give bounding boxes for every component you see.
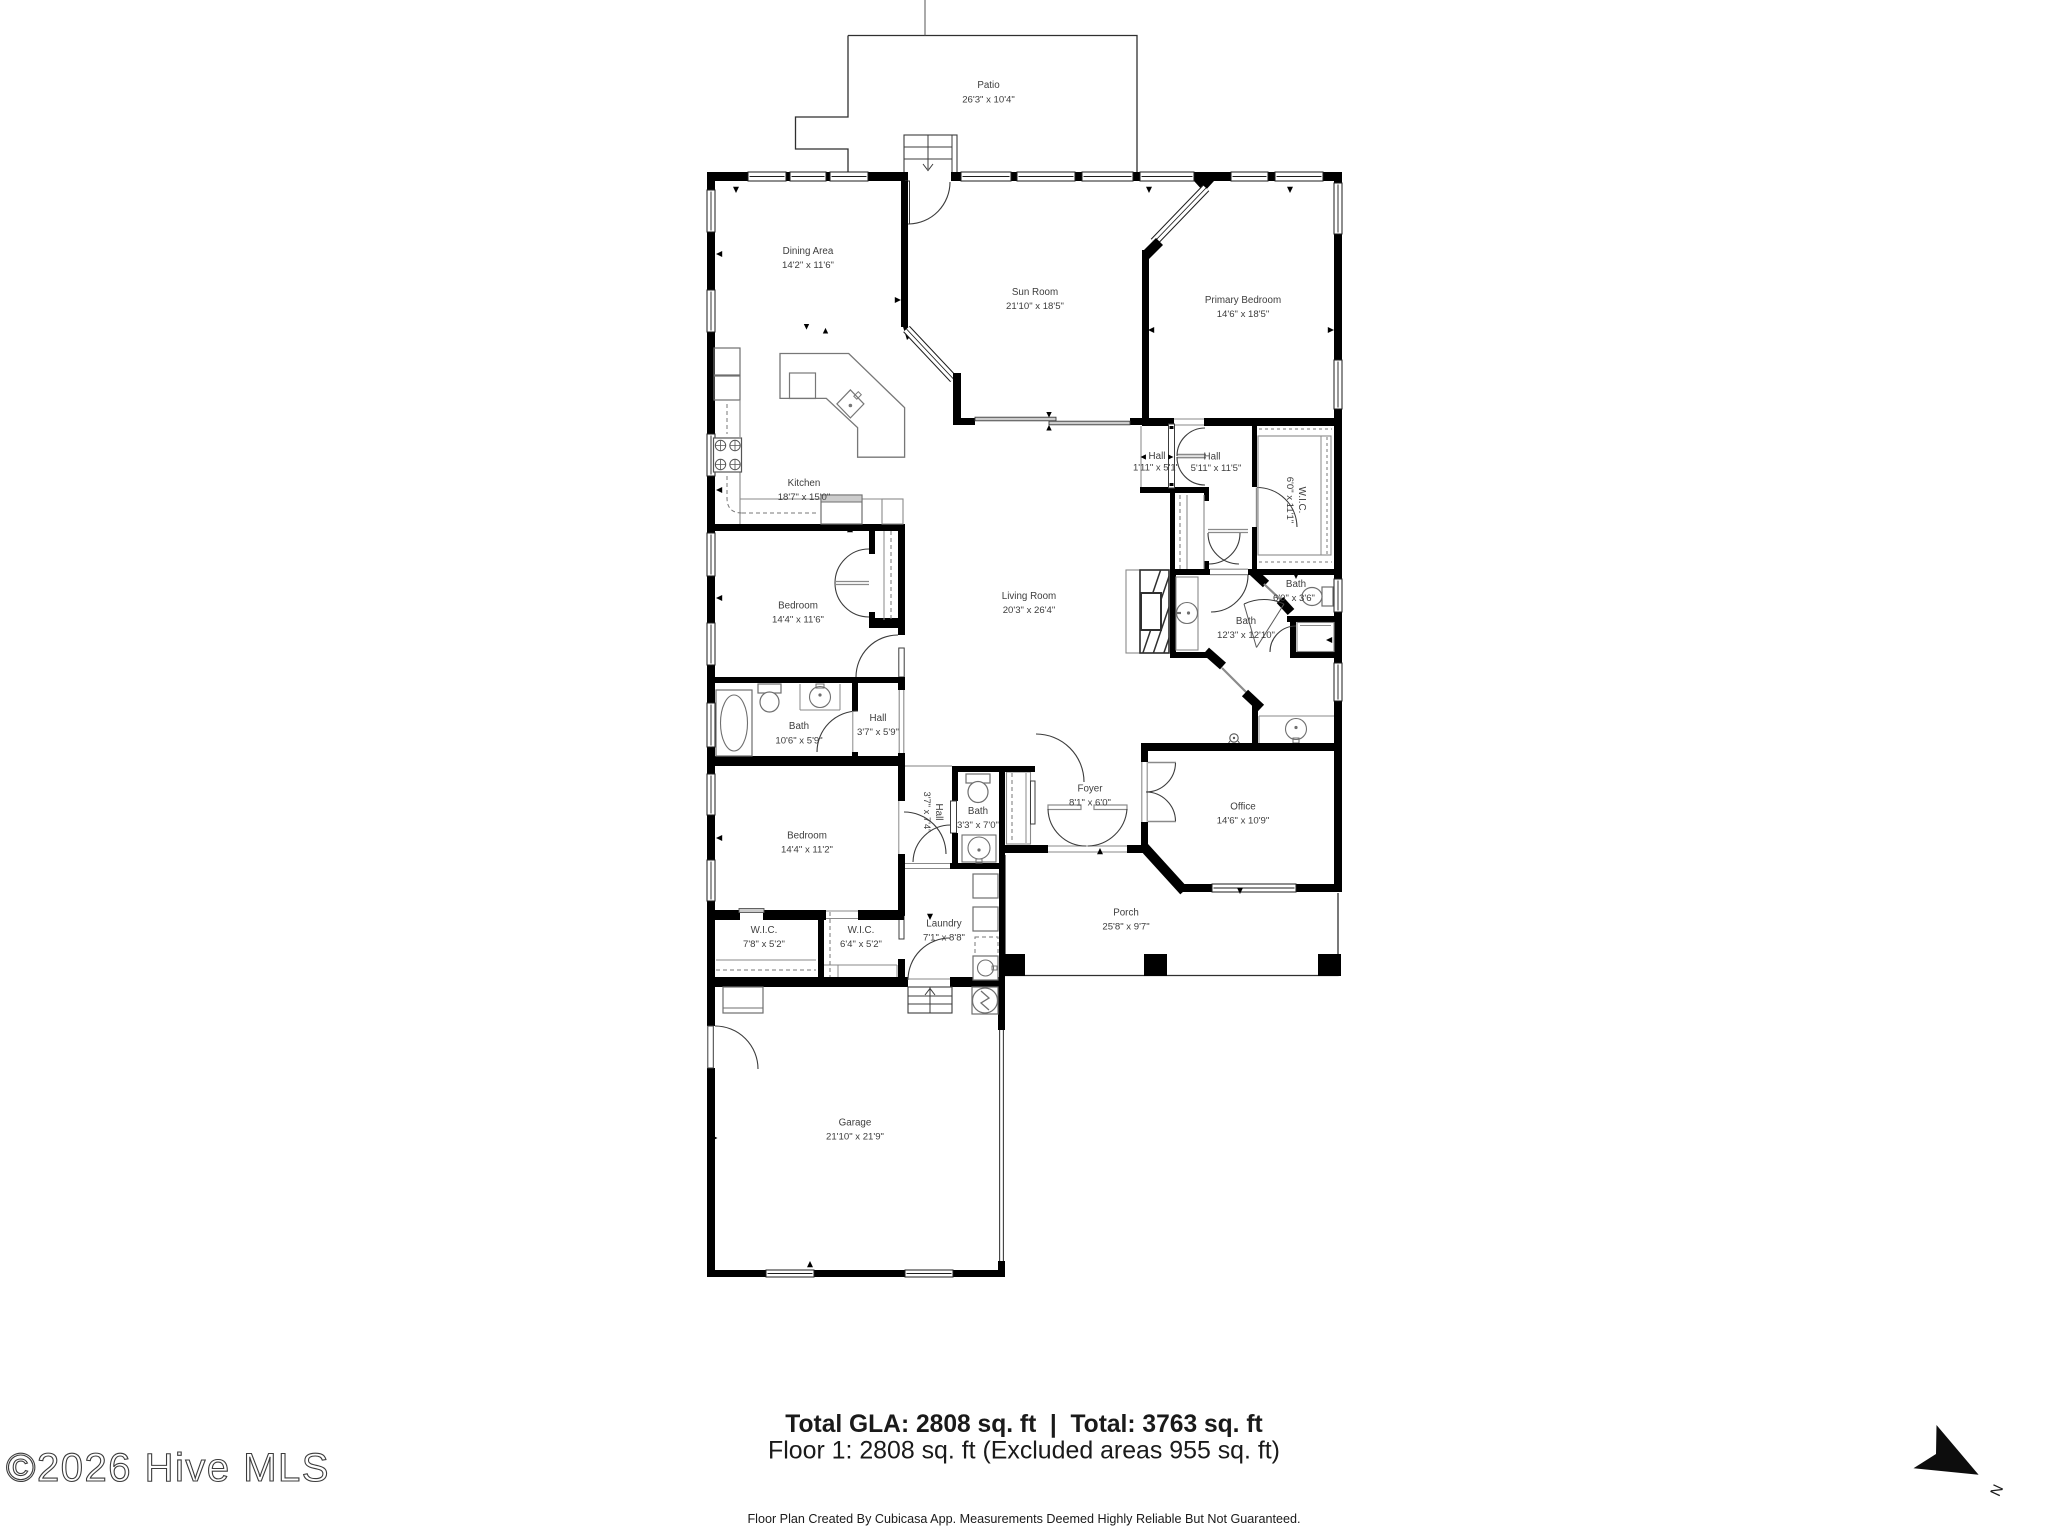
svg-text:Bath: Bath — [1286, 579, 1306, 590]
svg-text:21'10" x 21'9": 21'10" x 21'9" — [826, 1132, 884, 1143]
svg-text:Floor Plan Created By Cubicasa: Floor Plan Created By Cubicasa App. Meas… — [747, 1512, 1300, 1526]
svg-text:14'6" x 10'9": 14'6" x 10'9" — [1217, 816, 1270, 827]
svg-text:20'3" x 26'4": 20'3" x 26'4" — [1003, 605, 1056, 616]
svg-text:8'1" x 6'0": 8'1" x 6'0" — [1069, 798, 1111, 809]
svg-text:6'0" x 11'1": 6'0" x 11'1" — [1284, 477, 1295, 524]
svg-text:Sun Room: Sun Room — [1012, 287, 1058, 298]
svg-text:21'10" x 18'5": 21'10" x 18'5" — [1006, 301, 1064, 312]
svg-text:Living Room: Living Room — [1002, 591, 1056, 602]
svg-text:Foyer: Foyer — [1077, 784, 1103, 795]
svg-text:14'4" x 11'6": 14'4" x 11'6" — [772, 615, 824, 626]
svg-text:Kitchen: Kitchen — [788, 478, 821, 489]
svg-text:25'8" x 9'7": 25'8" x 9'7" — [1102, 922, 1149, 933]
svg-text:3'7" x 7'4": 3'7" x 7'4" — [922, 792, 933, 833]
svg-text:14'4" x 11'2": 14'4" x 11'2" — [781, 845, 833, 856]
svg-text:Hall: Hall — [1204, 452, 1221, 463]
svg-text:Garage: Garage — [839, 1118, 872, 1129]
svg-text:Hall: Hall — [1149, 451, 1166, 462]
svg-text:3'7" x 5'9": 3'7" x 5'9" — [857, 727, 899, 738]
svg-text:Dining Area: Dining Area — [783, 246, 834, 257]
svg-text:Hall: Hall — [933, 804, 944, 821]
svg-text:Floor 1: 2808 sq. ft (Excluded: Floor 1: 2808 sq. ft (Excluded areas 955… — [768, 1437, 1280, 1465]
svg-text:Bedroom: Bedroom — [778, 601, 818, 612]
svg-text:W.I.C.: W.I.C. — [751, 925, 778, 936]
svg-text:14'6" x 18'5": 14'6" x 18'5" — [1217, 309, 1270, 320]
svg-text:Hall: Hall — [870, 713, 887, 724]
svg-text:5'11" x 11'5": 5'11" x 11'5" — [1191, 463, 1242, 474]
svg-text:Patio: Patio — [977, 80, 1000, 91]
svg-text:W.I.C.: W.I.C. — [1296, 487, 1307, 514]
svg-text:©2026 Hive MLS: ©2026 Hive MLS — [6, 1446, 330, 1490]
svg-text:Bedroom: Bedroom — [787, 831, 827, 842]
svg-text:18'7" x 15'0": 18'7" x 15'0" — [778, 492, 831, 503]
svg-text:Laundry: Laundry — [926, 919, 962, 930]
svg-text:Bath: Bath — [1236, 616, 1256, 627]
svg-text:10'6" x 5'9": 10'6" x 5'9" — [775, 736, 822, 747]
svg-text:6'0" x 3'6": 6'0" x 3'6" — [1273, 593, 1315, 604]
svg-text:12'3" x 12'10": 12'3" x 12'10" — [1217, 630, 1275, 641]
svg-text:1'11" x 5'1": 1'11" x 5'1" — [1133, 463, 1179, 474]
svg-text:7'1" x 8'8": 7'1" x 8'8" — [923, 933, 965, 944]
svg-text:7'8" x 5'2": 7'8" x 5'2" — [743, 939, 785, 950]
svg-text:W.I.C.: W.I.C. — [848, 925, 875, 936]
svg-text:Porch: Porch — [1113, 908, 1139, 919]
svg-text:14'2" x 11'6": 14'2" x 11'6" — [782, 260, 834, 271]
svg-text:6'4" x 5'2": 6'4" x 5'2" — [840, 939, 882, 950]
svg-text:Bath: Bath — [789, 721, 809, 732]
svg-text:Primary Bedroom: Primary Bedroom — [1205, 295, 1281, 306]
svg-text:3'3" x 7'0": 3'3" x 7'0" — [957, 820, 999, 831]
svg-text:26'3" x 10'4": 26'3" x 10'4" — [962, 94, 1015, 105]
svg-text:N: N — [1986, 1481, 2006, 1498]
svg-text:Office: Office — [1230, 802, 1256, 813]
svg-text:Total GLA: 2808 sq. ft | Tot: Total GLA: 2808 sq. ft | Total: 3763 sq.… — [785, 1411, 1262, 1438]
svg-text:Bath: Bath — [968, 806, 988, 817]
